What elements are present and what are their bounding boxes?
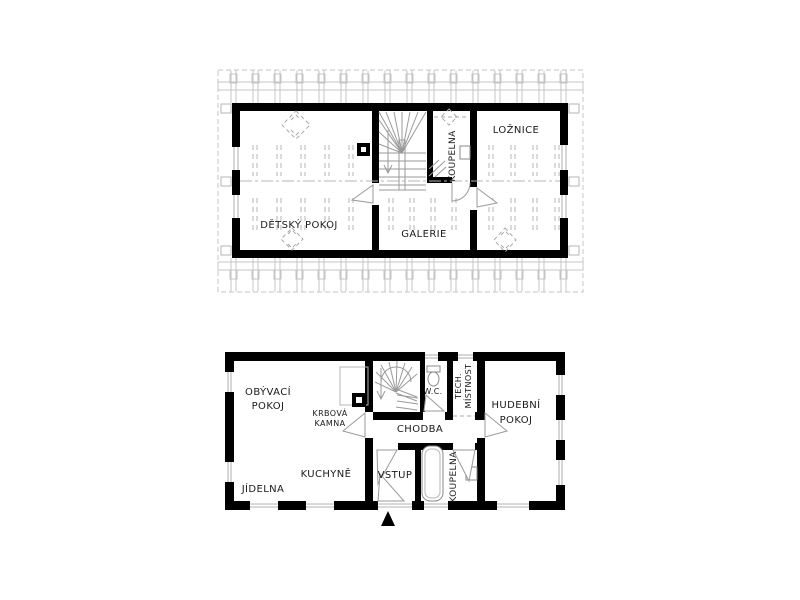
- ground-floor-plan: OBÝVACÍ POKOJ KRBOVÁ KAMNA CHODBA W.C. T…: [225, 352, 565, 526]
- ceiling-rafter-ticks: [253, 145, 559, 231]
- room-label-tech-1: TECH.: [454, 373, 463, 400]
- stairs-upper: [379, 112, 426, 190]
- door-arc-bathroom-upper: [452, 183, 470, 201]
- sink-icon: [460, 146, 470, 159]
- stairs-ground: [375, 361, 418, 410]
- chimney-upper: [357, 143, 370, 156]
- floorplan-canvas: DĚTSKÝ POKOJ GALERIE LOŽNICE KOUPELNA: [0, 0, 800, 600]
- room-label-loznice: LOŽNICE: [493, 123, 539, 136]
- room-label-hudebni-pokoj-1: HUDEBNÍ: [492, 398, 541, 411]
- toilet-tank: [427, 366, 440, 372]
- label-krbova-kamna-2: KAMNA: [315, 419, 346, 428]
- roof-window-icon: [281, 228, 303, 250]
- room-label-obyvaci-pokoj-1: OBÝVACÍ: [245, 385, 291, 398]
- room-label-wc: W.C.: [423, 387, 442, 396]
- door-detsky-pokoj: [352, 185, 373, 203]
- room-label-chodba: CHODBA: [397, 424, 443, 435]
- label-krbova-kamna-1: KRBOVÁ: [312, 407, 347, 418]
- door-wc: [424, 395, 444, 411]
- room-label-galerie: GALERIE: [401, 229, 447, 240]
- room-label-koupelna-upper: KOUPELNA: [448, 130, 458, 182]
- fireplace: [340, 367, 368, 407]
- upper-floor-plan: DĚTSKÝ POKOJ GALERIE LOŽNICE KOUPELNA: [218, 70, 583, 292]
- entrance-arrow-icon: [381, 511, 395, 526]
- upper-doors: [352, 185, 497, 207]
- roof-fascia-bottom: [218, 262, 583, 270]
- room-label-kuchyne: KUCHYNĚ: [301, 467, 352, 480]
- room-label-hudebni-pokoj-2: POKOJ: [500, 415, 533, 426]
- room-label-tech-2: MÍSTNOST: [462, 364, 473, 409]
- floorplan-drawing: DĚTSKÝ POKOJ GALERIE LOŽNICE KOUPELNA: [0, 0, 800, 600]
- roof-rafters-bottom: [230, 258, 567, 292]
- room-label-vstup: VSTUP: [378, 470, 413, 481]
- room-label-detsky-pokoj: DĚTSKÝ POKOJ: [260, 218, 338, 231]
- roof-window-icon: [494, 228, 516, 252]
- roof-rafters-top: [230, 71, 567, 104]
- room-label-jidelna: JÍDELNA: [241, 482, 285, 495]
- room-label-koupelna-ground: KOUPELNA: [449, 451, 459, 503]
- room-label-obyvaci-pokoj-2: POKOJ: [252, 401, 285, 412]
- roof-window-icon: [282, 111, 310, 139]
- roof-fascia-top: [218, 82, 583, 90]
- toilet-icon: [428, 372, 439, 386]
- door-loznice: [477, 188, 497, 207]
